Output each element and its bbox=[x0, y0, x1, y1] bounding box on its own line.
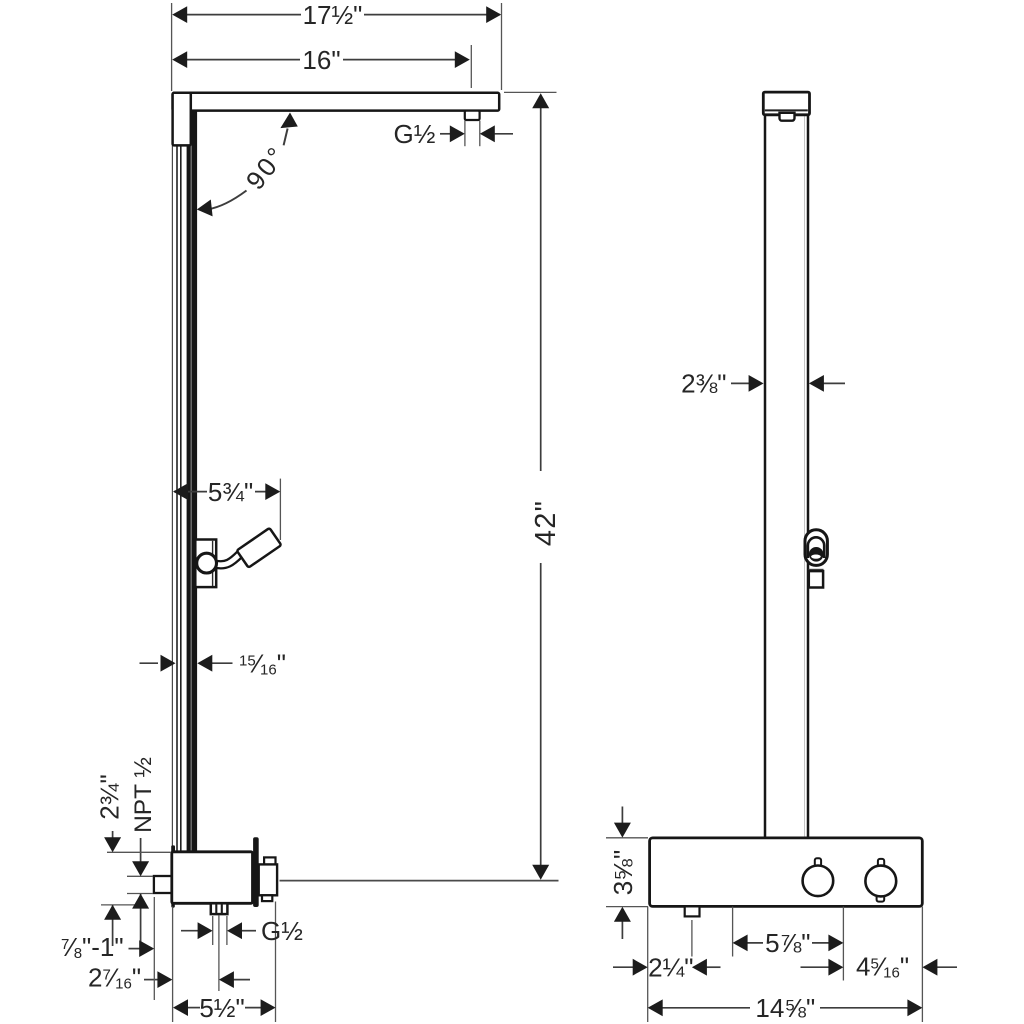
svg-text:NPT ½: NPT ½ bbox=[130, 757, 157, 833]
svg-text:16": 16" bbox=[302, 45, 340, 75]
svg-text:14⅝": 14⅝" bbox=[755, 993, 815, 1023]
svg-text:5½": 5½" bbox=[199, 993, 244, 1023]
svg-text:2¼": 2¼" bbox=[648, 953, 693, 983]
svg-text:3⅝": 3⅝" bbox=[608, 850, 638, 895]
svg-text:G½: G½ bbox=[394, 119, 436, 149]
svg-text:5¾": 5¾" bbox=[208, 477, 253, 507]
svg-text:G½: G½ bbox=[261, 916, 303, 946]
svg-text:7⁄8"-1": 7⁄8"-1" bbox=[61, 932, 124, 962]
svg-text:17½": 17½" bbox=[303, 0, 363, 30]
svg-text:27⁄16": 27⁄16" bbox=[88, 963, 141, 993]
svg-text:5⅞": 5⅞" bbox=[765, 928, 810, 958]
svg-text:45⁄16": 45⁄16" bbox=[856, 952, 909, 982]
svg-text:42": 42" bbox=[530, 500, 562, 546]
svg-text:2¾": 2¾" bbox=[94, 774, 124, 819]
svg-text:2⅜": 2⅜" bbox=[681, 369, 726, 399]
